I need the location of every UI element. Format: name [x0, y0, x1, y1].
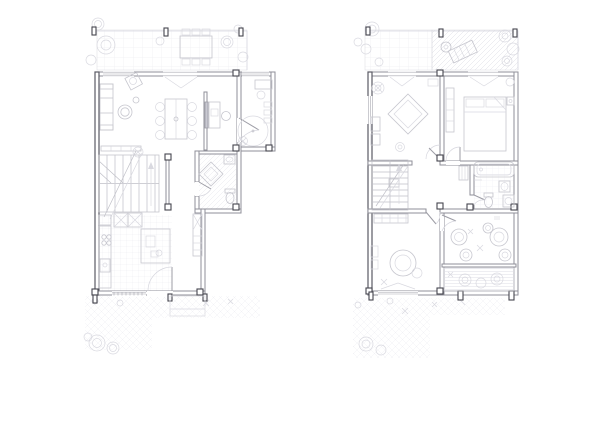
garden-area: [84, 296, 260, 354]
kids-room: [451, 217, 511, 261]
floor-plan-canvas: [0, 0, 600, 425]
garden-area: [353, 298, 505, 358]
ground-floor-plan: [84, 18, 275, 354]
study-nook: [205, 102, 231, 128]
balcony: [444, 268, 514, 291]
bedroom-2: [446, 78, 514, 151]
bedroom-1: [371, 79, 438, 152]
living-room: [100, 72, 143, 157]
roof-terrace: [354, 22, 519, 70]
upper-floor-plan: [353, 22, 519, 358]
staircase: [99, 151, 159, 219]
bedroom-3: [371, 214, 422, 285]
roof-terrace: [86, 18, 248, 70]
plans-root: [84, 18, 519, 358]
staircase: [372, 160, 408, 210]
hall-shelf: [459, 166, 468, 180]
dining-area: [156, 99, 197, 140]
floor-plans-drawing: [0, 0, 600, 425]
